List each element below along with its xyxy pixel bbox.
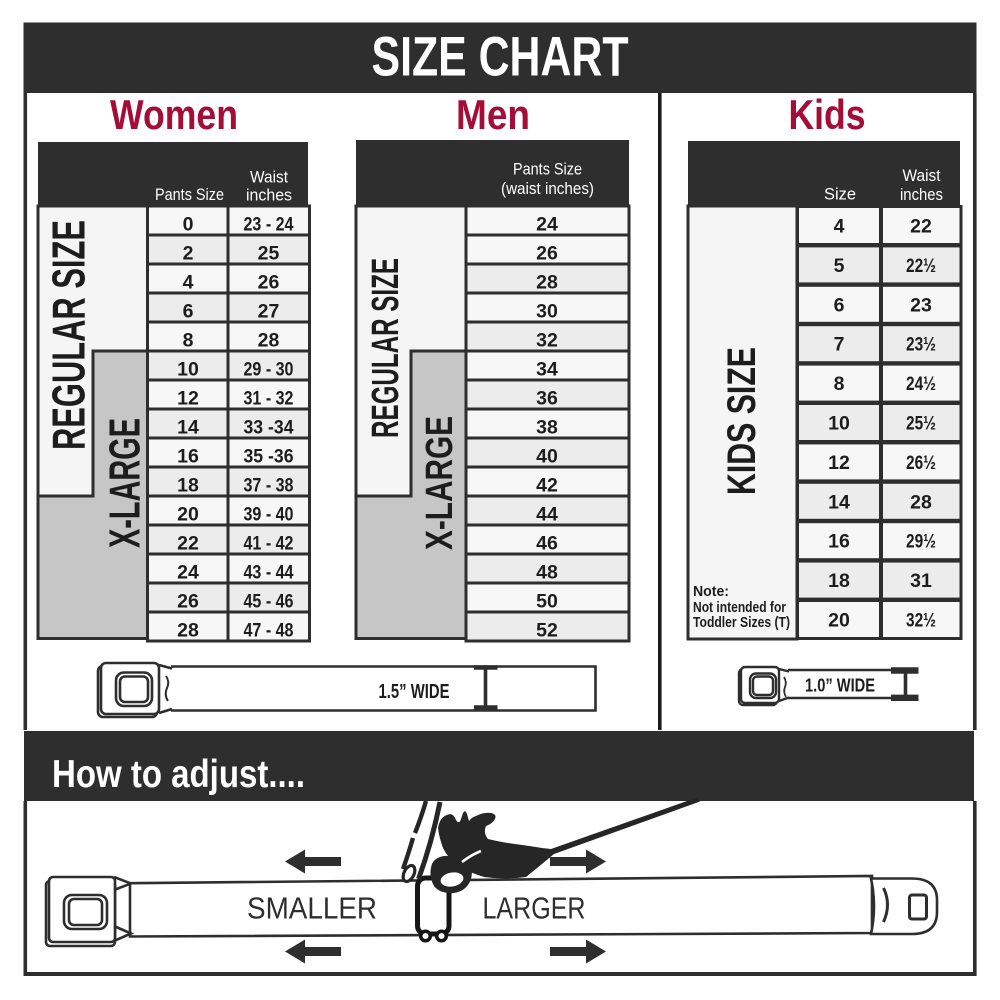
svg-text:10: 10: [828, 413, 850, 435]
svg-text:8: 8: [183, 330, 194, 352]
svg-text:KIDS SIZE: KIDS SIZE: [720, 347, 764, 495]
svg-text:25: 25: [258, 243, 280, 265]
svg-text:2: 2: [183, 243, 194, 265]
svg-text:28: 28: [177, 620, 199, 642]
svg-text:22: 22: [910, 216, 932, 238]
svg-text:28: 28: [536, 272, 558, 294]
svg-text:50: 50: [536, 591, 558, 613]
svg-text:Toddler Sizes (T): Toddler Sizes (T): [693, 615, 790, 631]
svg-text:20: 20: [177, 504, 199, 526]
svg-text:26: 26: [258, 272, 280, 294]
svg-text:LARGER: LARGER: [483, 892, 586, 926]
svg-text:12: 12: [177, 388, 199, 410]
svg-text:16: 16: [828, 531, 850, 553]
svg-text:39 - 40: 39 - 40: [244, 504, 294, 526]
svg-text:6: 6: [183, 301, 194, 323]
svg-text:26: 26: [536, 243, 558, 265]
svg-text:10: 10: [177, 359, 199, 381]
svg-text:REGULAR SIZE: REGULAR SIZE: [365, 258, 407, 438]
svg-text:44: 44: [536, 504, 558, 526]
svg-text:46: 46: [536, 533, 558, 555]
svg-text:33 -34: 33 -34: [244, 417, 294, 439]
svg-text:28: 28: [258, 330, 280, 352]
svg-text:23½: 23½: [906, 334, 936, 356]
svg-text:Pants Size: Pants Size: [513, 160, 582, 179]
svg-text:14: 14: [177, 417, 199, 439]
svg-text:7: 7: [834, 334, 845, 356]
svg-text:1.0” WIDE: 1.0” WIDE: [805, 676, 875, 696]
svg-text:22½: 22½: [906, 255, 936, 277]
svg-text:Men: Men: [456, 91, 530, 138]
svg-text:How to adjust....: How to adjust....: [52, 753, 305, 796]
svg-text:26½: 26½: [906, 452, 936, 474]
svg-text:47 - 48: 47 - 48: [244, 620, 294, 642]
svg-text:43 - 44: 43 - 44: [244, 562, 294, 584]
svg-text:SMALLER: SMALLER: [247, 892, 377, 926]
svg-text:Waist: Waist: [903, 166, 941, 185]
svg-text:4: 4: [183, 272, 194, 294]
svg-text:4: 4: [834, 216, 845, 238]
svg-text:31 - 32: 31 - 32: [244, 388, 294, 410]
svg-text:X-LARGE: X-LARGE: [101, 418, 150, 548]
svg-text:X-LARGE: X-LARGE: [419, 416, 461, 550]
svg-text:32½: 32½: [906, 610, 936, 632]
svg-text:Waist: Waist: [250, 168, 288, 187]
svg-text:14: 14: [828, 491, 850, 513]
svg-text:30: 30: [536, 301, 558, 323]
svg-text:16: 16: [177, 446, 199, 468]
svg-text:29 - 30: 29 - 30: [244, 359, 294, 381]
svg-text:6: 6: [834, 294, 845, 316]
svg-text:35 -36: 35 -36: [244, 446, 294, 468]
svg-text:inches: inches: [900, 185, 943, 204]
svg-text:41 - 42: 41 - 42: [244, 533, 294, 555]
svg-text:Note:: Note:: [693, 584, 729, 600]
svg-text:24: 24: [177, 562, 199, 584]
svg-text:12: 12: [828, 452, 850, 474]
svg-text:SIZE CHART: SIZE CHART: [372, 25, 629, 88]
svg-text:5: 5: [834, 255, 845, 277]
svg-text:37 - 38: 37 - 38: [244, 475, 294, 497]
svg-text:23: 23: [910, 294, 932, 316]
svg-text:38: 38: [536, 417, 558, 439]
svg-text:28: 28: [910, 491, 932, 513]
svg-text:52: 52: [536, 620, 558, 642]
svg-text:Pants Size: Pants Size: [155, 185, 224, 204]
svg-text:32: 32: [536, 330, 558, 352]
svg-text:42: 42: [536, 475, 558, 497]
svg-text:0: 0: [183, 214, 194, 236]
svg-text:Size: Size: [824, 185, 856, 204]
svg-text:1.5” WIDE: 1.5” WIDE: [379, 681, 450, 703]
svg-text:REGULAR SIZE: REGULAR SIZE: [43, 220, 95, 450]
svg-text:20: 20: [828, 610, 850, 632]
svg-text:24½: 24½: [906, 373, 936, 395]
svg-text:31: 31: [910, 570, 932, 592]
svg-text:Women: Women: [110, 91, 238, 138]
svg-text:48: 48: [536, 562, 558, 584]
svg-text:18: 18: [828, 570, 850, 592]
svg-text:27: 27: [258, 301, 280, 323]
svg-text:45 - 46: 45 - 46: [244, 591, 294, 613]
svg-text:22: 22: [177, 533, 199, 555]
svg-text:36: 36: [536, 388, 558, 410]
svg-text:Kids: Kids: [789, 91, 866, 138]
svg-text:24: 24: [536, 214, 558, 236]
svg-text:(waist inches): (waist inches): [501, 179, 594, 198]
svg-text:25½: 25½: [906, 413, 936, 435]
svg-text:40: 40: [536, 446, 558, 468]
svg-text:26: 26: [177, 591, 199, 613]
svg-text:Not intended for: Not intended for: [693, 600, 786, 616]
svg-text:inches: inches: [246, 186, 292, 205]
svg-text:34: 34: [536, 359, 558, 381]
svg-text:18: 18: [177, 475, 199, 497]
svg-text:23 - 24: 23 - 24: [244, 214, 294, 236]
svg-text:29½: 29½: [906, 531, 936, 553]
svg-text:8: 8: [834, 373, 845, 395]
